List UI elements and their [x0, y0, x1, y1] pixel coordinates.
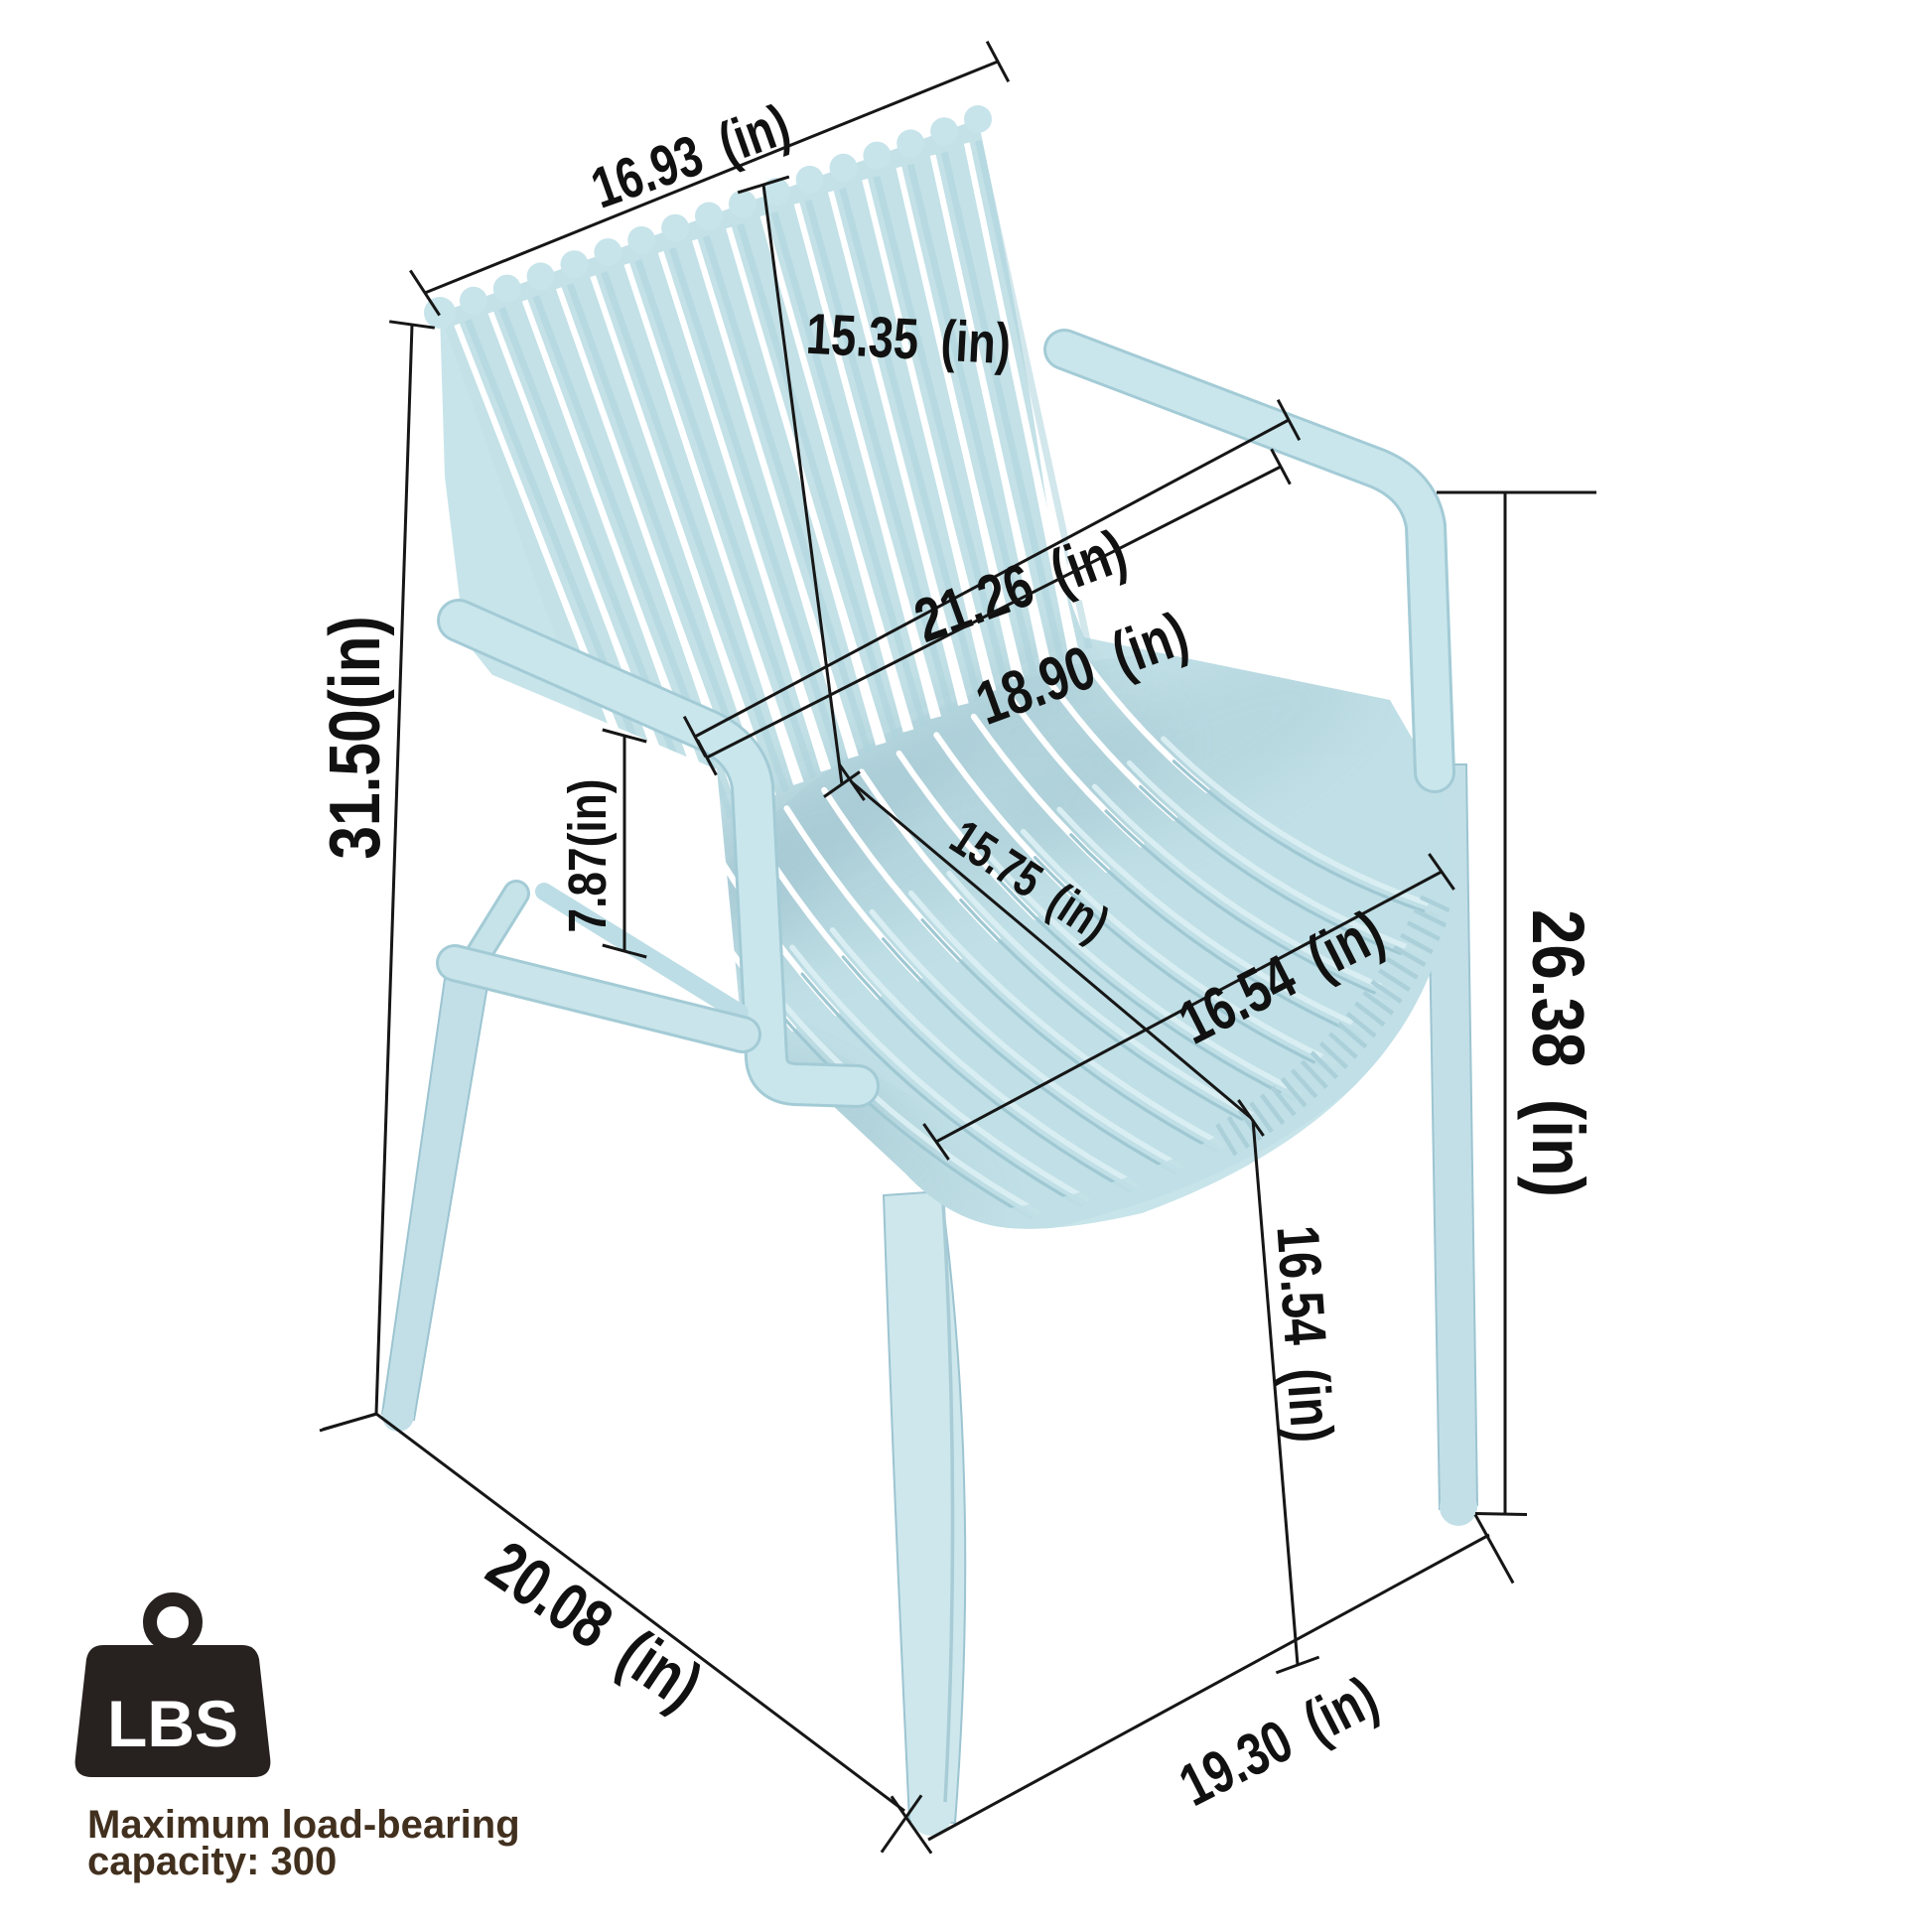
svg-text:31.50(in): 31.50(in) [316, 616, 395, 859]
svg-text:LBS: LBS [107, 1687, 238, 1760]
svg-text:7.87(in): 7.87(in) [558, 779, 618, 933]
svg-text:capacity: 300: capacity: 300 [87, 1840, 337, 1883]
svg-text:15.35 (in): 15.35 (in) [804, 302, 1012, 376]
svg-text:26.38 (in): 26.38 (in) [1517, 909, 1599, 1197]
